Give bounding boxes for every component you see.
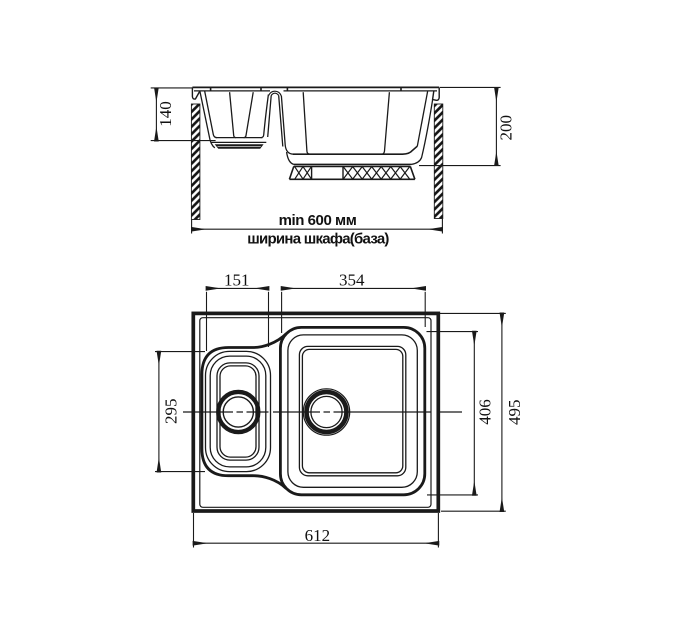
svg-text:ширина шкафа(база): ширина шкафа(база)	[247, 231, 389, 248]
svg-text:140: 140	[156, 101, 175, 127]
svg-text:151: 151	[224, 271, 250, 290]
svg-text:406: 406	[476, 399, 495, 425]
svg-text:354: 354	[339, 271, 365, 290]
svg-text:612: 612	[305, 526, 331, 545]
svg-text:495: 495	[505, 400, 524, 426]
svg-text:295: 295	[161, 399, 180, 425]
svg-text:200: 200	[496, 115, 515, 141]
svg-text:min 600 мм: min 600 мм	[279, 212, 357, 229]
